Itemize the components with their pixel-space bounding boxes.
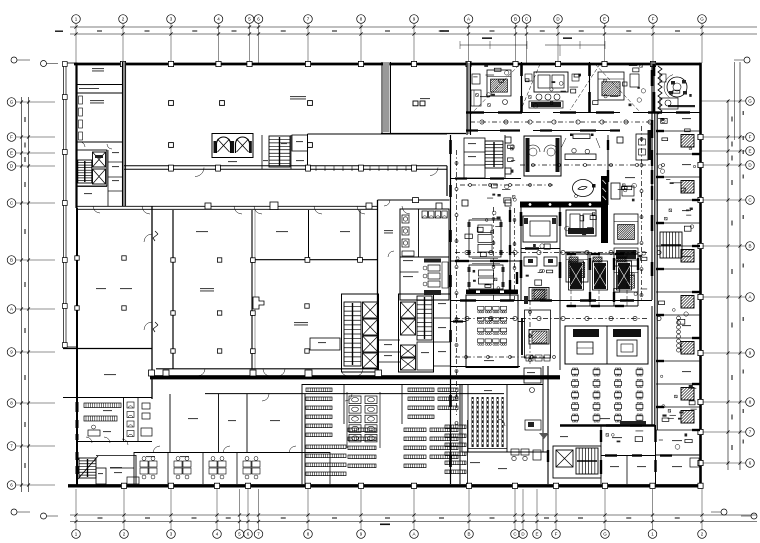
svg-text:B: B	[514, 17, 517, 22]
svg-text:B: B	[10, 258, 13, 263]
svg-text:E: E	[603, 17, 606, 22]
svg-text:E: E	[535, 532, 538, 537]
svg-text:F: F	[10, 135, 13, 140]
svg-text:A: A	[10, 307, 13, 312]
svg-text:E: E	[10, 151, 13, 156]
svg-text:G: G	[700, 17, 704, 22]
svg-text:F: F	[652, 17, 655, 22]
svg-text:A: A	[748, 295, 751, 300]
svg-text:G: G	[10, 100, 14, 105]
svg-text:E: E	[748, 149, 751, 154]
svg-text:F: F	[555, 532, 558, 537]
svg-text:G: G	[603, 532, 607, 537]
svg-text:A: A	[467, 17, 470, 22]
svg-text:A: A	[412, 532, 415, 537]
svg-text:B: B	[467, 532, 470, 537]
svg-text:F: F	[749, 135, 752, 140]
svg-text:G: G	[748, 99, 752, 104]
svg-text:B: B	[748, 244, 751, 249]
